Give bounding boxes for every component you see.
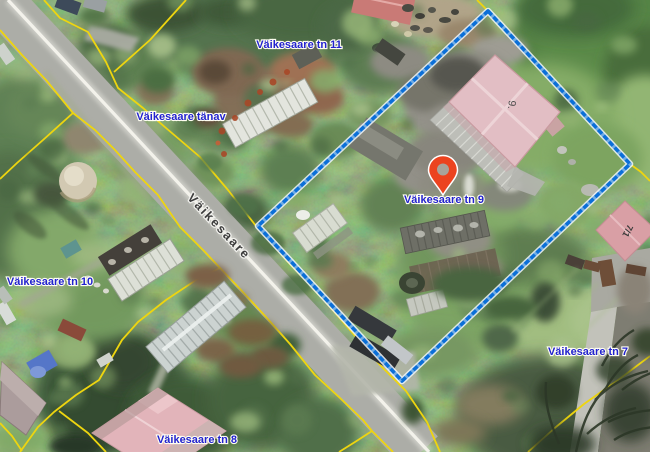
svg-text:Väikesaare tn 10: Väikesaare tn 10 bbox=[7, 276, 93, 288]
svg-text:9.: 9. bbox=[505, 100, 518, 110]
svg-text:Väikesaare tn 11: Väikesaare tn 11 bbox=[256, 39, 342, 51]
svg-text:Väikesaare tn 9: Väikesaare tn 9 bbox=[404, 194, 484, 206]
svg-text:Väikesaare tn 8: Väikesaare tn 8 bbox=[157, 434, 237, 446]
svg-text:Väikesaare tn 7: Väikesaare tn 7 bbox=[548, 346, 628, 358]
svg-text:Väikesaare tänav: Väikesaare tänav bbox=[136, 111, 226, 123]
